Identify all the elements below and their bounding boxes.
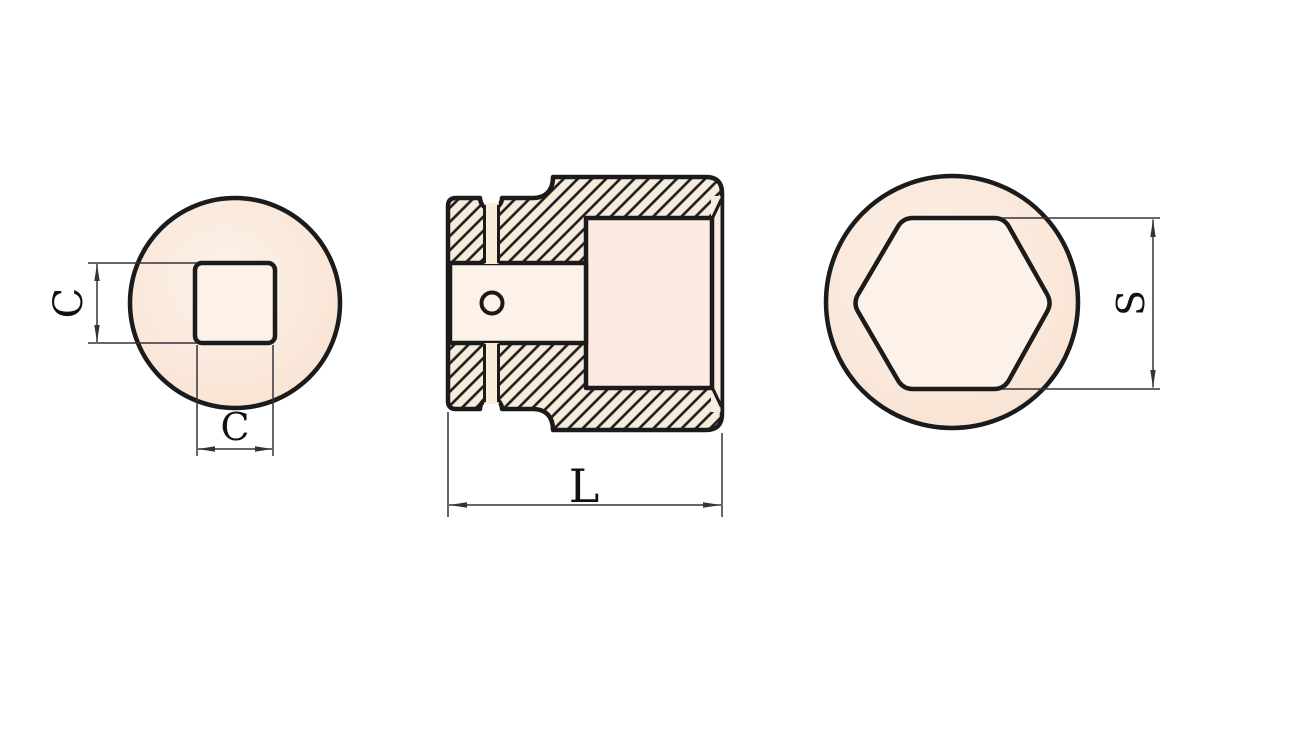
- hex-opening-end-view: S: [826, 176, 1160, 428]
- pin-hole: [482, 293, 503, 314]
- arrowhead-up: [94, 264, 99, 281]
- hex-opening-cavity: [586, 218, 712, 388]
- dim-label-overall-length: L: [569, 459, 600, 513]
- square-drive-cavity: [450, 263, 586, 343]
- arrowhead-right: [703, 502, 721, 508]
- ring-groove-top: [484, 203, 499, 264]
- drawing-canvas: C C: [0, 0, 1304, 744]
- dim-label-square-width: C: [220, 405, 249, 449]
- square-drive-hole: [195, 263, 275, 343]
- arrowhead-down: [1150, 370, 1155, 388]
- arrowhead-up: [1150, 220, 1155, 238]
- section-view: L: [448, 177, 722, 517]
- arrowhead-left: [198, 446, 215, 451]
- socket-technical-drawing: C C: [0, 0, 1304, 744]
- arrowhead-right: [255, 446, 272, 451]
- groove-slot: [484, 203, 499, 264]
- ring-groove-bottom: [484, 343, 499, 404]
- dim-label-square-height: C: [46, 288, 92, 319]
- dim-label-across-flats: S: [1109, 290, 1153, 316]
- square-drive-end-view: C C: [46, 198, 340, 456]
- arrowhead-left: [449, 502, 467, 508]
- arrowhead-down: [94, 325, 99, 342]
- groove-slot: [484, 343, 499, 404]
